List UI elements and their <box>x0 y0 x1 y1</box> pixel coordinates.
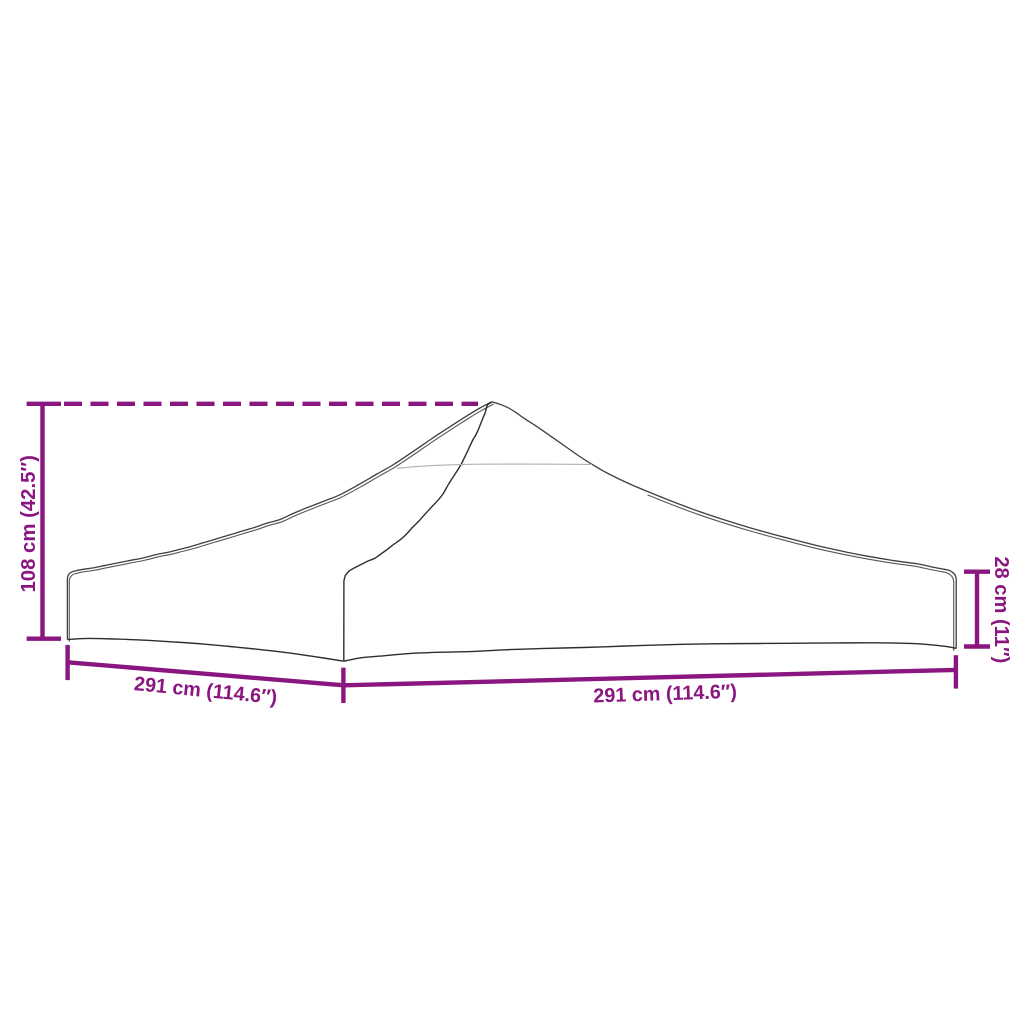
svg-text:28 cm (11″): 28 cm (11″) <box>990 556 1012 663</box>
svg-text:108 cm (42.5″): 108 cm (42.5″) <box>18 455 40 593</box>
svg-text:291 cm (114.6″): 291 cm (114.6″) <box>593 681 737 707</box>
